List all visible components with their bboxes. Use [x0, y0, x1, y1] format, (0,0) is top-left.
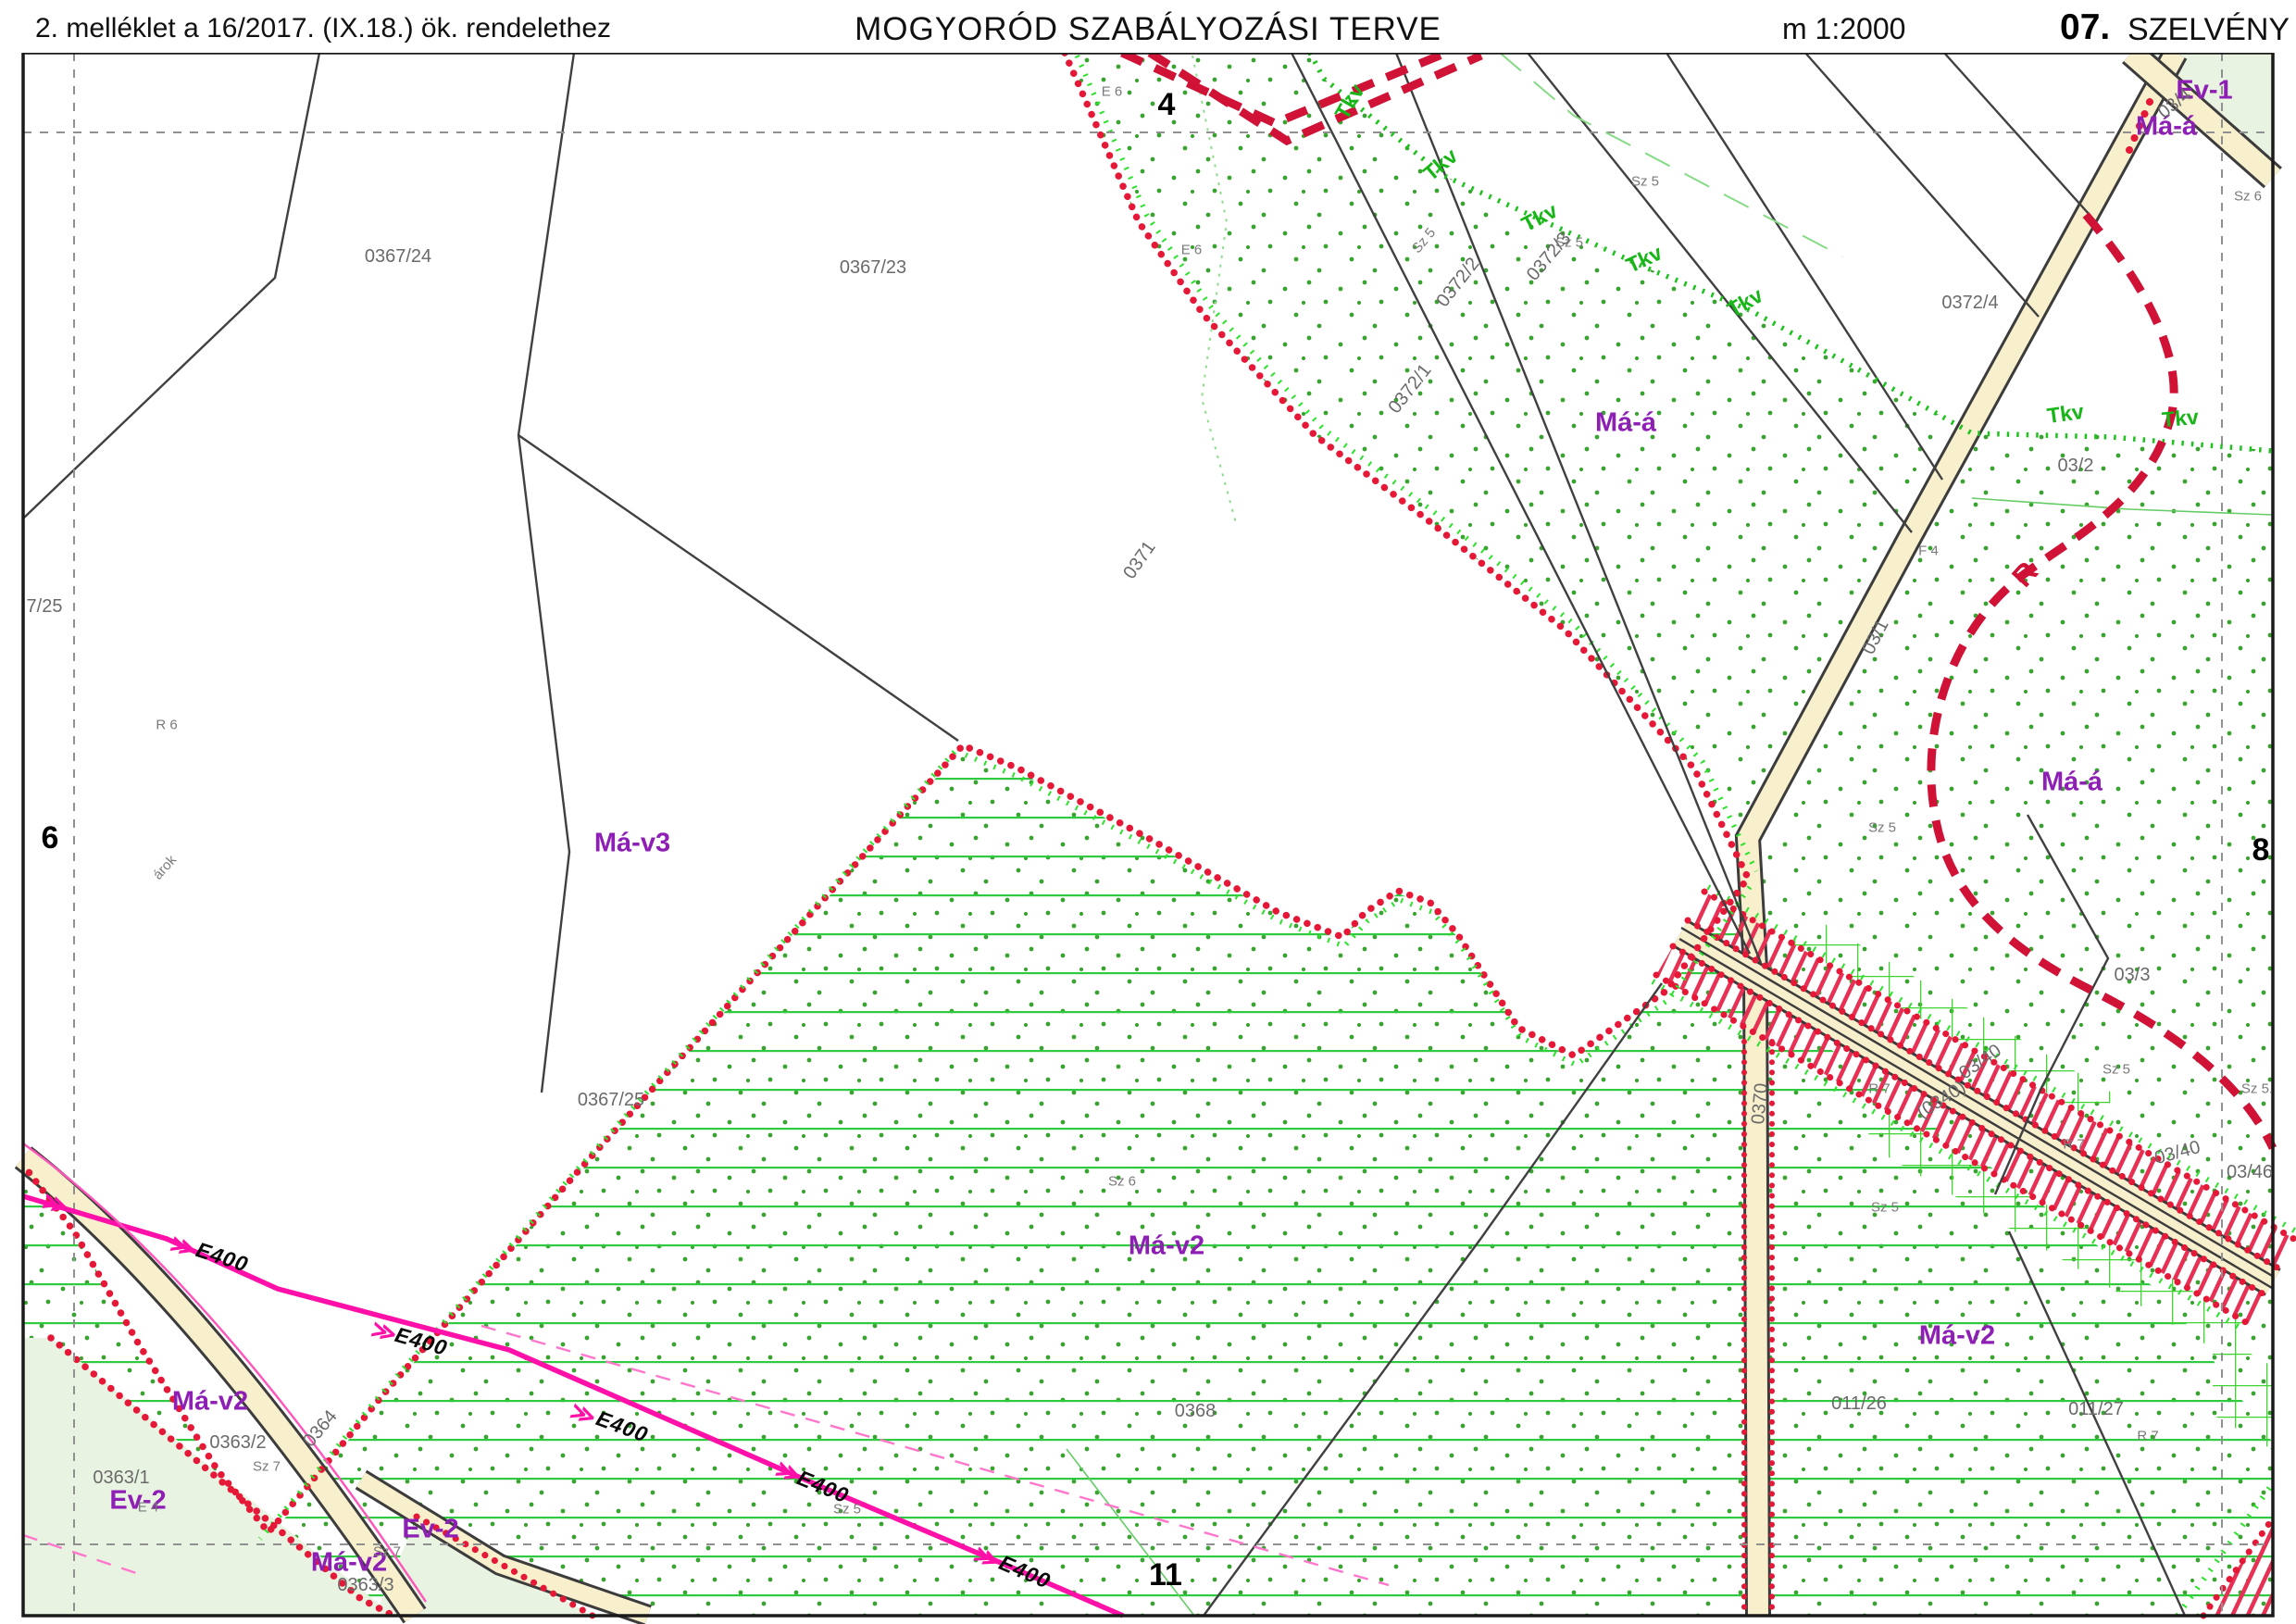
sheet-number: 07. — [2060, 7, 2110, 48]
map-scale: m 1:2000 — [1782, 12, 1905, 46]
plan-sheet: Ev-1Má-áMá-áMá-áMá-v3Má-v2Má-v2Má-v2Ev-2… — [0, 0, 2296, 1624]
title-bar: 2. melléklet a 16/2017. (IX.18.) ök. ren… — [0, 0, 2296, 53]
map-canvas: Ev-1Má-áMá-áMá-áMá-v3Má-v2Má-v2Má-v2Ev-2… — [0, 0, 2296, 1624]
annex-reference: 2. melléklet a 16/2017. (IX.18.) ök. ren… — [35, 13, 611, 44]
map-drawing — [0, 0, 2296, 1624]
sheet-number-label: SZELVÉNY — [2128, 12, 2290, 48]
page-title: MOGYORÓD SZABÁLYOZÁSI TERVE — [855, 11, 1441, 48]
